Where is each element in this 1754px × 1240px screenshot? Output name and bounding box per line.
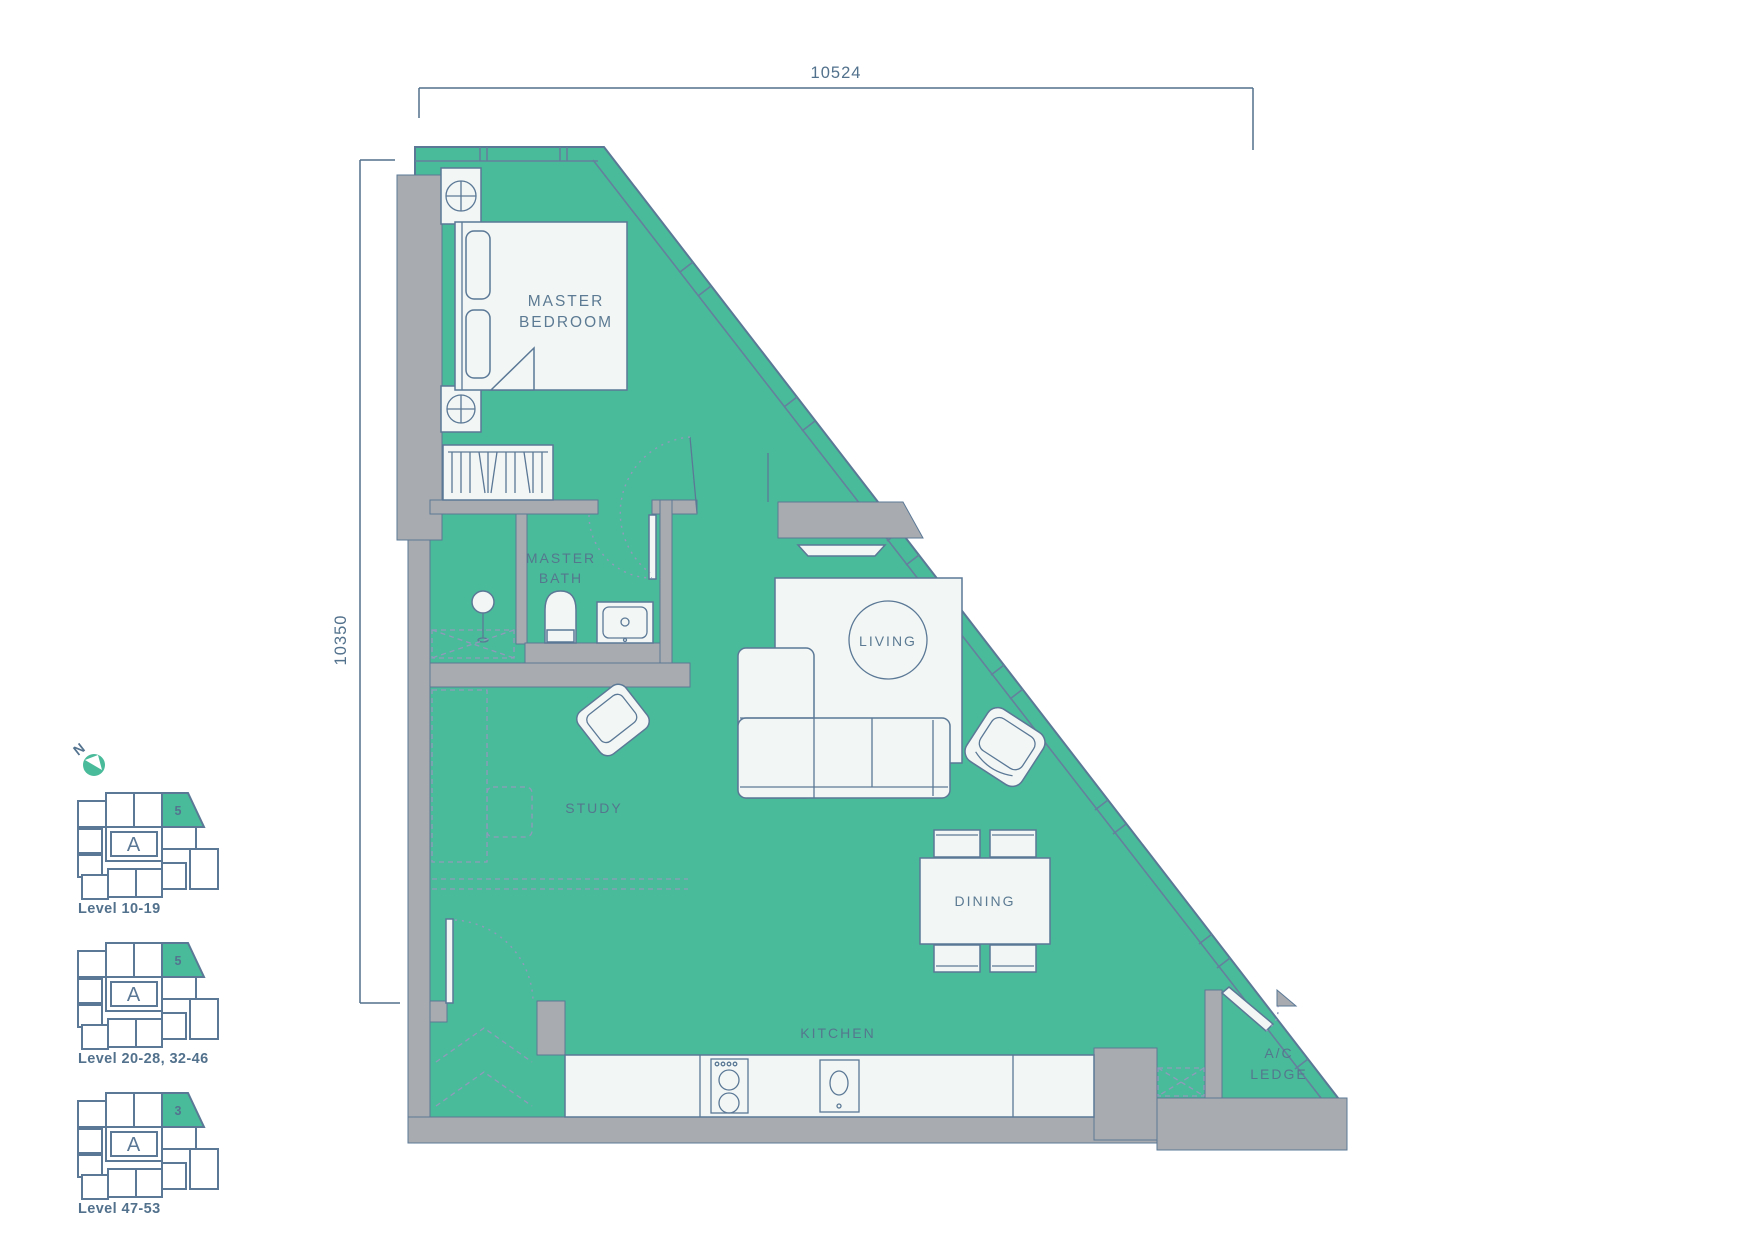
entrance-door-leaf [446,919,453,1003]
tv-console [778,502,923,538]
unit-number: 5 [175,954,182,968]
dimension-top: 10524 [419,64,1253,150]
tower-label: A [127,1134,141,1156]
key-plan-3: A 3 Level 47-53 [78,1093,218,1217]
keyplan-caption: Level 20-28, 32-46 [78,1051,209,1067]
ac-door-wedge [1277,990,1296,1006]
bath-door-leaf [649,515,656,579]
wall-study-north [430,663,690,687]
ac-ledge-label-1: A/C [1264,1045,1293,1061]
highlighted-unit [162,1093,204,1127]
tower-label: A [127,984,141,1006]
master-bedroom-label-2: BEDROOM [519,314,613,331]
keyplan-caption: Level 10-19 [78,901,161,917]
wall-bottom [408,1117,1160,1143]
wall-bath-middle [516,514,527,644]
unit-number: 3 [175,1104,182,1118]
dimension-top-value: 10524 [811,64,862,82]
wardrobe [443,445,553,500]
wall-entrance-right [537,1001,565,1055]
living-label: LIVING [859,633,917,649]
pillow-2 [466,310,490,378]
compass: N [70,740,105,776]
tv [798,545,885,556]
dimension-left: 10350 [332,160,400,1003]
ac-ledge-label-2: LEDGE [1250,1066,1307,1082]
unit-number: 5 [175,804,182,818]
keyplan-caption: Level 47-53 [78,1201,161,1217]
master-bath-label-2: BATH [539,570,583,586]
wall-kitchen-right-block [1094,1048,1157,1140]
ac-ledge-slab [1157,1098,1347,1150]
wall-bath-south [525,643,660,663]
pillow-1 [466,231,490,299]
sofa-body [738,718,950,798]
study-label: STUDY [565,800,622,816]
wall-entrance-left [430,1001,447,1022]
dining-label: DINING [955,893,1016,909]
dining-chair-2 [990,830,1036,857]
highlighted-unit [162,943,204,977]
master-bedroom-label-1: MASTER [528,293,605,310]
wall-left-lower [408,540,430,1117]
dining-chair-1 [934,830,980,857]
dining-chair-4 [990,945,1036,972]
floorplan-canvas: MASTER BEDROOM MASTER BATH [0,0,1754,1240]
highlighted-unit [162,793,204,827]
toilet-tank [547,630,574,642]
wall-bath-east [660,500,672,663]
floorplan-page: MASTER BEDROOM MASTER BATH [0,0,1754,1240]
shower-head-icon [472,591,494,613]
key-plan-2: A 5 Level 20-28, 32-46 [78,943,218,1067]
master-bath-label-1: MASTER [526,550,596,566]
kitchen-counter [565,1055,1094,1117]
wall-bath-north-2 [652,500,697,514]
kitchen-label: KITCHEN [800,1025,875,1041]
tower-label: A [127,834,141,856]
key-plan-1: A 5 Level 10-19 [78,793,218,917]
dining-chair-3 [934,945,980,972]
wall-ac-ledge [1205,990,1222,1098]
wall-bath-north-1 [430,500,598,514]
north-label: N [70,740,88,759]
dimension-left-value: 10350 [332,615,350,666]
wall-left-slab [397,175,442,540]
